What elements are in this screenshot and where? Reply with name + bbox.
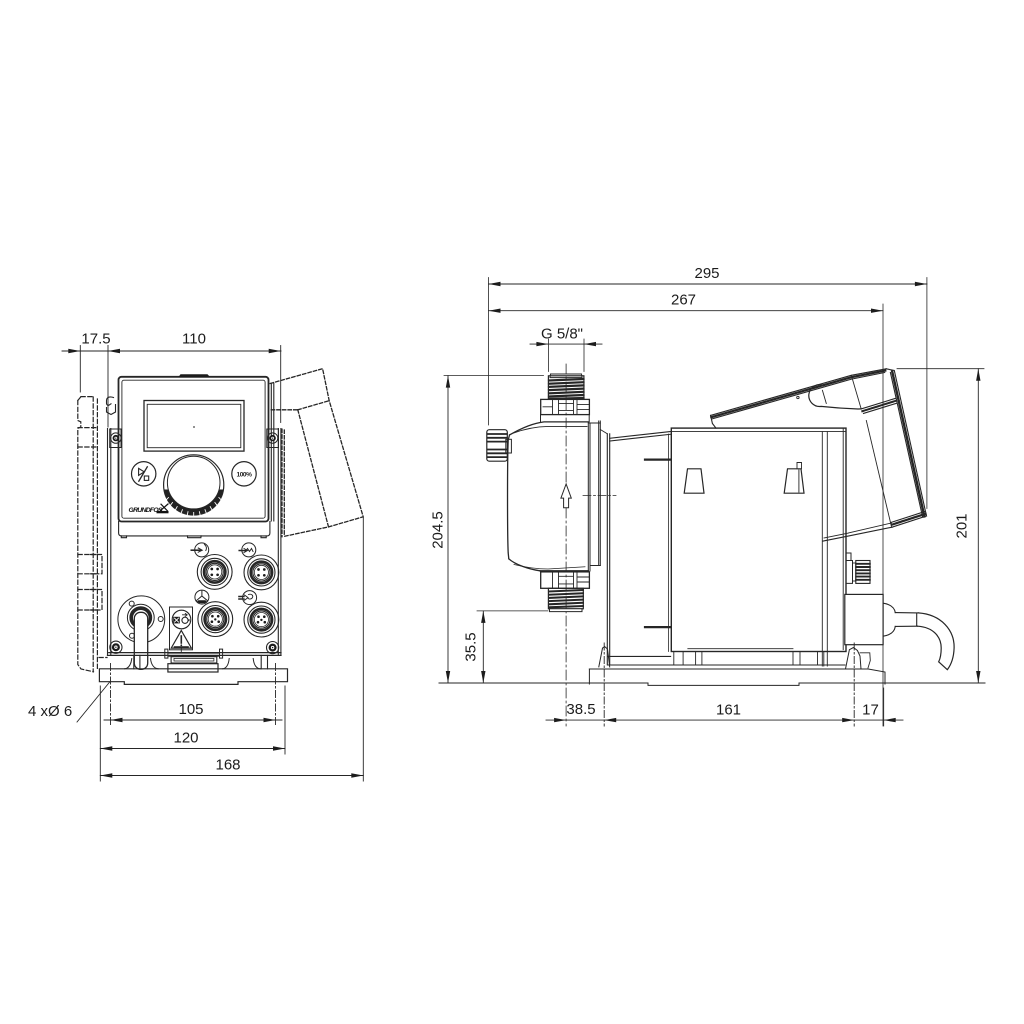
svg-text:267: 267: [671, 292, 696, 309]
svg-text:17: 17: [862, 702, 879, 719]
svg-text:110: 110: [182, 331, 206, 348]
svg-text:201: 201: [954, 513, 971, 538]
svg-text:35.5: 35.5: [463, 632, 480, 661]
svg-text:100%: 100%: [236, 472, 252, 479]
svg-text:295: 295: [694, 265, 719, 282]
svg-text:G 5/8": G 5/8": [541, 326, 583, 343]
svg-text:4 xØ 6: 4 xØ 6: [28, 703, 72, 720]
svg-text:168: 168: [215, 757, 240, 774]
svg-text:161: 161: [716, 702, 741, 719]
svg-text:38.5: 38.5: [566, 701, 595, 718]
svg-text:17.5: 17.5: [81, 331, 110, 348]
svg-text:120: 120: [173, 730, 198, 747]
svg-text:204.5: 204.5: [430, 511, 447, 549]
svg-text:105: 105: [178, 701, 203, 718]
